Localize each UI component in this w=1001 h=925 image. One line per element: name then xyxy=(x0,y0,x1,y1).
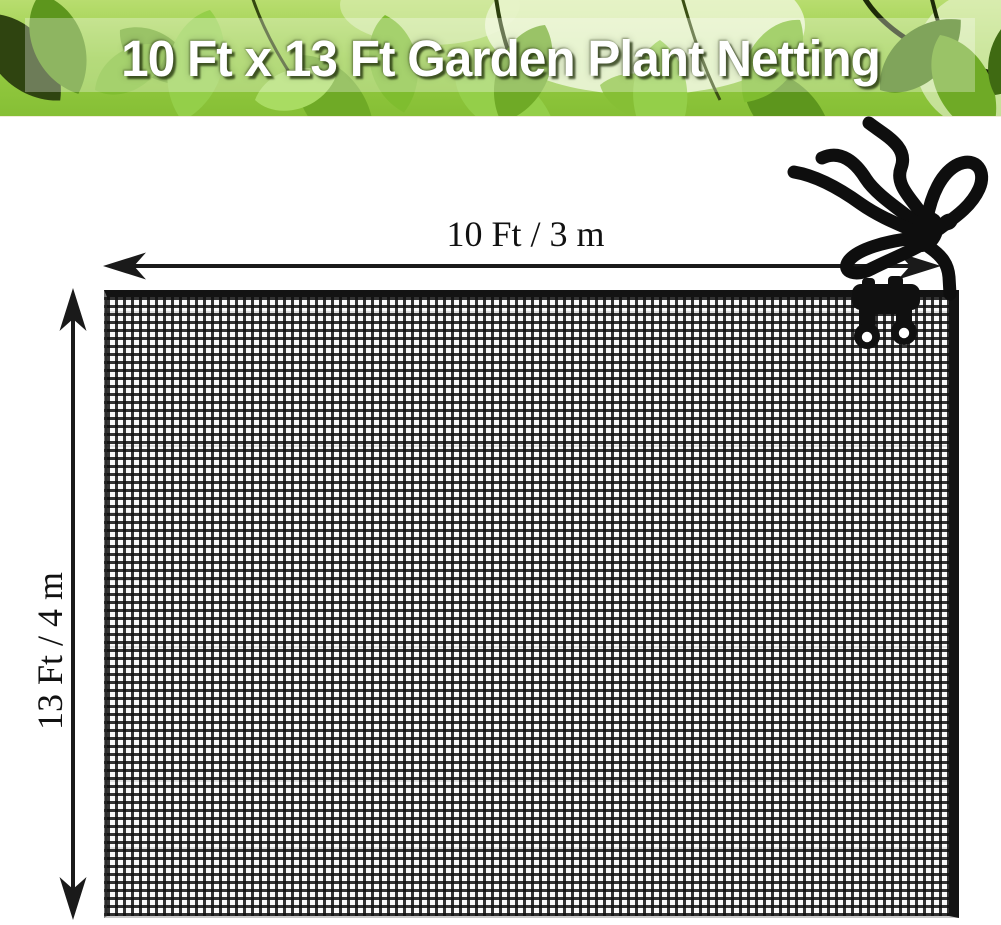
width-arrow xyxy=(103,253,941,280)
cord-tie-icon xyxy=(794,123,982,294)
width-dimension-label: 10 Ft / 3 m xyxy=(104,213,947,255)
banner: 10 Ft x 13 Ft Garden Plant Netting xyxy=(0,0,1001,117)
arrow-right-head xyxy=(898,253,941,280)
height-dimension-label: 13 Ft / 4 m xyxy=(29,561,71,741)
arrow-up-head xyxy=(60,288,87,331)
banner-title: 10 Ft x 13 Ft Garden Plant Netting xyxy=(15,0,986,116)
product-image: 10 Ft x 13 Ft Garden Plant Netting xyxy=(0,0,1001,925)
arrow-left-head xyxy=(103,253,146,280)
arrow-down-head xyxy=(60,877,87,920)
netting-mesh xyxy=(104,290,959,918)
